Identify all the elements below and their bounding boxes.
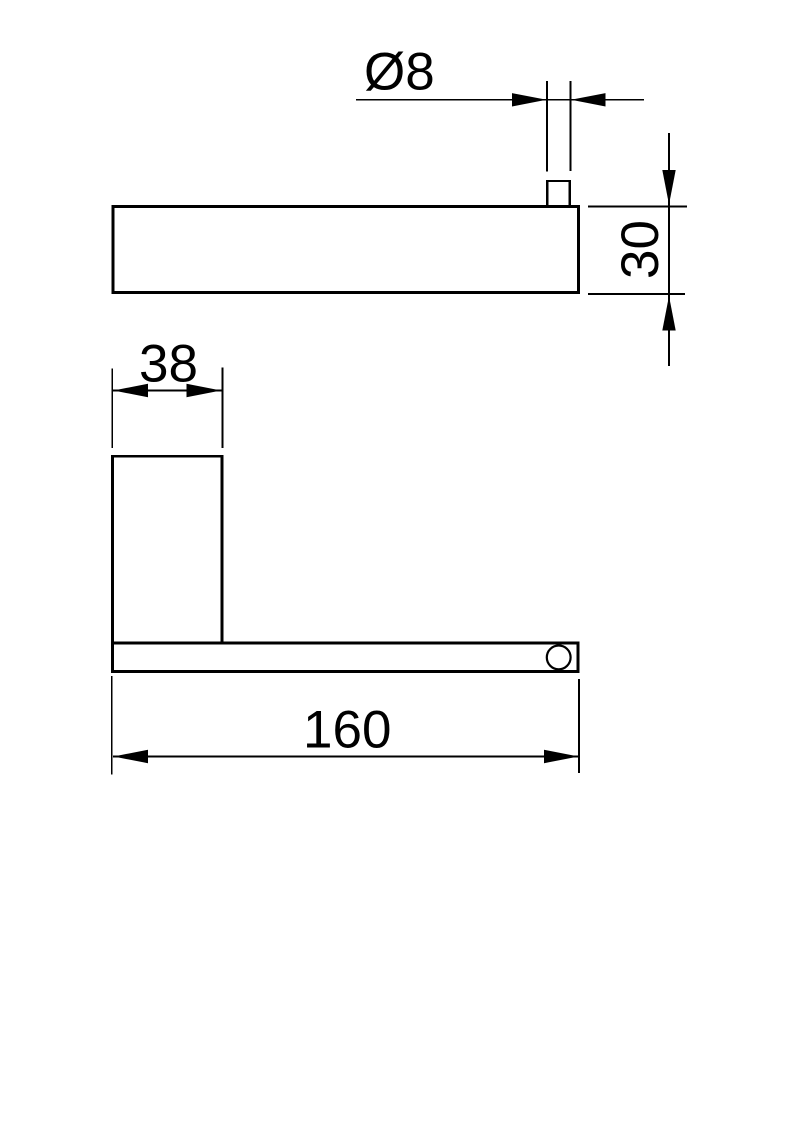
svg-text:30: 30 [611, 220, 670, 279]
svg-text:38: 38 [139, 335, 198, 394]
svg-text:Ø8: Ø8 [364, 43, 435, 102]
svg-text:160: 160 [303, 701, 391, 760]
